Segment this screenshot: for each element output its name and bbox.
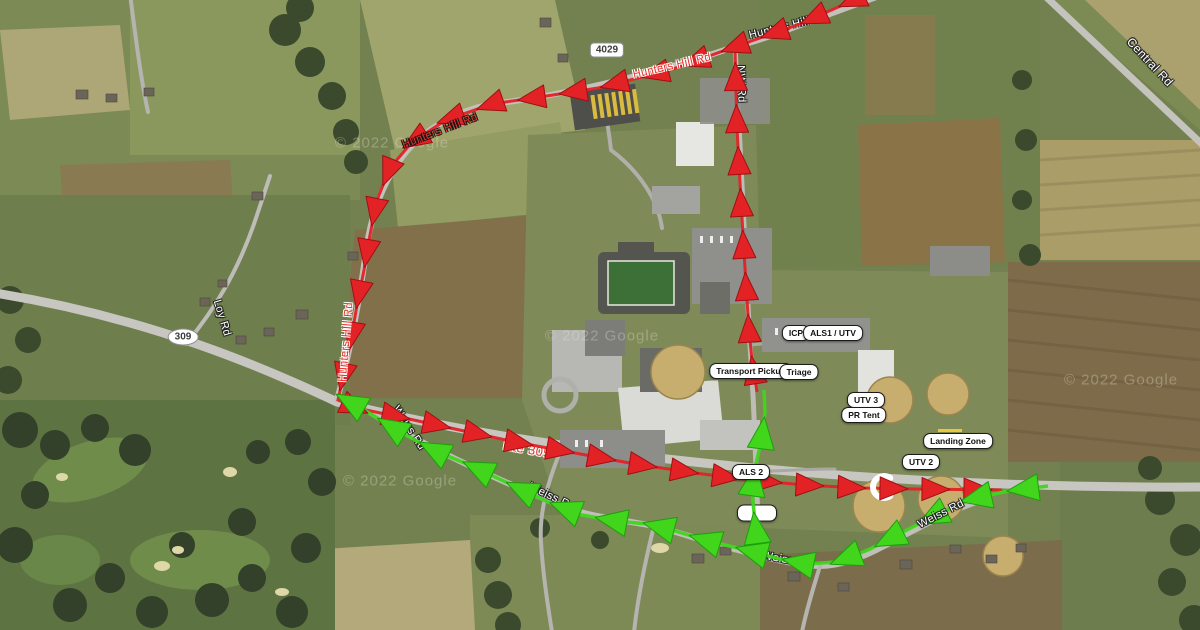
waypoint-utv-2: UTV 2 [902,454,940,470]
satellite-map-canvas[interactable]: Hunters Hill RdHunters Hill RdHunters Hi… [0,0,1200,630]
waypoint-als1-utv: ALS1 / UTV [803,325,863,341]
road-label-nw-rd: NW Rd [734,65,747,103]
waypoint-landing-zone: Landing Zone [923,433,993,449]
waypoint-utv-3: UTV 3 [847,392,885,408]
waypoint-obscured [737,505,777,522]
waypoint-triage: Triage [779,364,818,380]
google-watermark: © 2022 Google [545,328,659,345]
route-badge-309: 309 [168,329,199,346]
google-watermark: © 2022 Google [343,473,457,490]
waypoint-pr-tent: PR Tent [841,407,886,423]
route-badge-4029: 4029 [590,43,624,58]
satellite-imagery [0,0,1200,630]
waypoint-als-2: ALS 2 [732,464,770,480]
google-watermark: © 2022 Google [1064,372,1178,389]
